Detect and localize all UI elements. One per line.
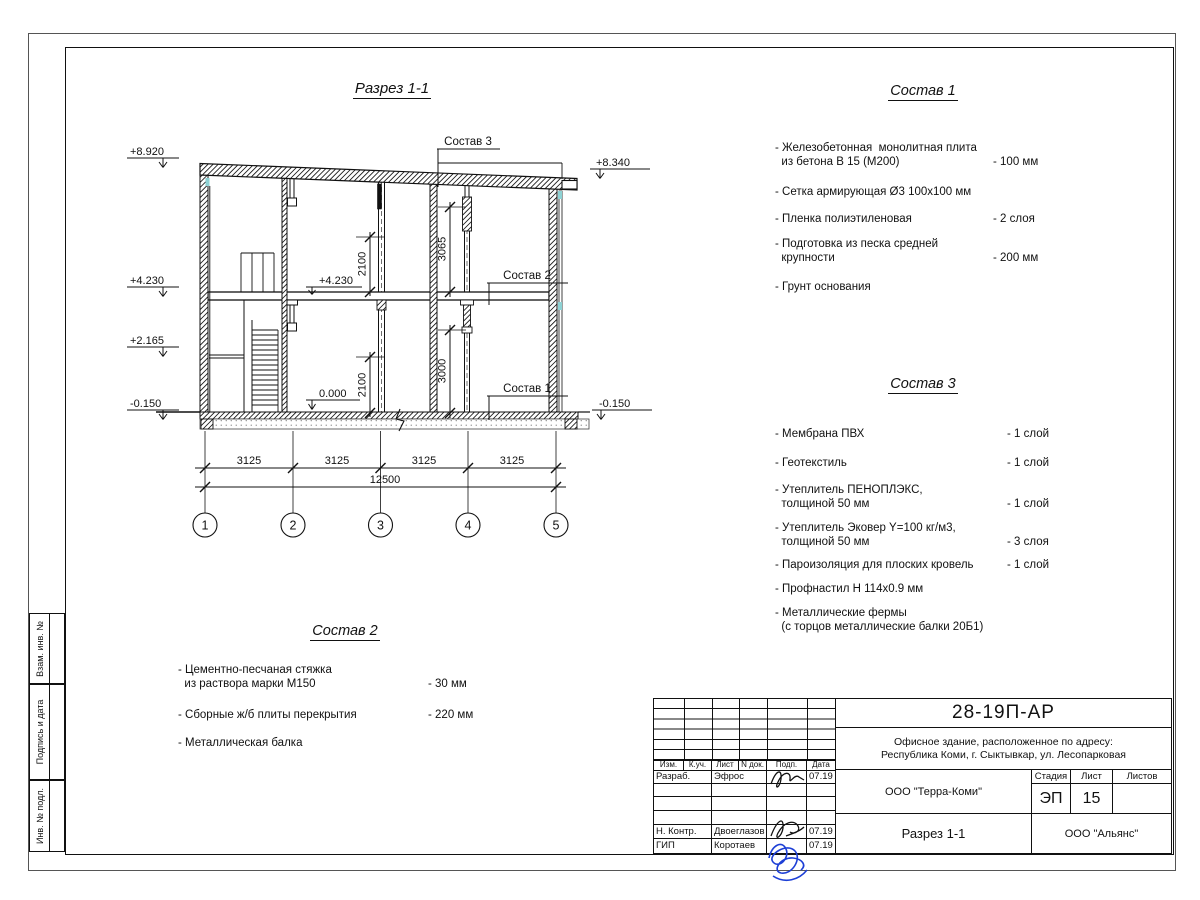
axis-4: 4 <box>465 519 472 533</box>
svg-text:0.000: 0.000 <box>319 388 347 400</box>
roof-end-plate <box>562 181 577 190</box>
svg-text:-0.150: -0.150 <box>130 398 161 410</box>
svg-text:+8.340: +8.340 <box>596 157 630 169</box>
elevation-landing-left: +2.165 <box>127 335 179 357</box>
section-name-cell: Разрез 1-1 <box>836 814 1032 853</box>
right-exterior-wall <box>549 188 557 412</box>
dim-bay-1: 3125 <box>237 455 261 467</box>
sidebar-box-inv: Инв. № подл. <box>29 780 65 852</box>
dim-room-lower: 2100 <box>357 373 369 397</box>
sheet-label: Лист <box>1071 770 1113 784</box>
list-item: - Грунт основания <box>775 281 871 295</box>
svg-text:+4.230: +4.230 <box>319 275 353 287</box>
list-item: - Мембрана ПВХ- 1 слой <box>775 428 864 442</box>
svg-text:+2.165: +2.165 <box>130 335 164 347</box>
svg-text:+8.920: +8.920 <box>130 146 164 158</box>
glazing-mark-right-top <box>558 191 562 199</box>
list-item: - Утеплитель Эковер Y=100 кг/м3, толщино… <box>775 522 956 549</box>
sidebar-label: Взам. инв. № <box>35 621 45 677</box>
dim-bay-2: 3125 <box>325 455 349 467</box>
list-item: - Подготовка из песка средней крупности-… <box>775 238 938 265</box>
sidebar-label: Подпись и дата <box>35 700 45 765</box>
sostav2-heading: Состав 2 <box>284 623 406 639</box>
list-item: - Сборные ж/б плиты перекрытия- 220 мм <box>178 709 357 723</box>
axis-1: 1 <box>202 519 209 533</box>
vertical-dimensions: 2100 2100 3065 3000 <box>356 202 466 418</box>
axis-bubbles: 1 2 3 4 5 <box>193 513 568 537</box>
right-wall-liner <box>559 191 562 412</box>
axis-3: 3 <box>377 519 384 533</box>
glazing-mark-right-mid <box>558 302 562 310</box>
title-block: Изм. К.уч. Лист N док. Подп. Дата Разраб… <box>653 698 1172 854</box>
elevation-ground-left: -0.150 <box>127 398 179 420</box>
sostav1-list: - Железобетонная монолитная плита из бет… <box>775 140 1075 310</box>
leader-label-sostav-1: Состав 1 <box>503 383 551 395</box>
list-item: - Железобетонная монолитная плита из бет… <box>775 142 977 169</box>
list-item: - Утеплитель ПЕНОПЛЭКС, толщиной 50 мм- … <box>775 484 923 511</box>
doc-number: 28-19П-АР <box>836 699 1171 728</box>
svg-text:+4.230: +4.230 <box>130 275 164 287</box>
axis-5: 5 <box>553 519 560 533</box>
list-item: - Профнастил Н 114х0.9 мм <box>775 583 923 597</box>
elevation-zero-inner: 0.000 <box>306 388 360 410</box>
sidebar-box-podpis: Подпись и дата <box>29 684 65 780</box>
contractor-cell: ООО "Альянс" <box>1032 814 1171 853</box>
elevation-roof-left: +8.920 <box>127 146 179 168</box>
staircase <box>209 253 278 412</box>
leader-label-sostav-3: Состав 3 <box>444 136 492 148</box>
stage-label: Стадия <box>1032 770 1071 784</box>
dim-total: 12500 <box>370 474 401 486</box>
section-drawing: Состав 3 Состав 2 Состав 1 +8.920 +4.230 <box>90 70 690 540</box>
revision-table <box>654 699 835 761</box>
list-item: - Пленка полиэтиленовая- 2 слоя <box>775 213 912 227</box>
horizontal-dimensions: 3125 3125 3125 3125 12500 <box>195 431 566 513</box>
title-block-right: 28-19П-АР Офисное здание, расположенное … <box>836 699 1171 853</box>
list-item: - Пароизоляция для плоских кровель- 1 сл… <box>775 559 974 573</box>
sostav3-list: - Мембрана ПВХ- 1 слой - Геотекстиль- 1 … <box>775 428 1085 638</box>
sostav3-heading: Состав 3 <box>862 376 984 392</box>
ground-slab <box>156 409 590 431</box>
title-block-left: Изм. К.уч. Лист N док. Подп. Дата Разраб… <box>654 699 836 853</box>
floor-slab <box>208 292 549 300</box>
axis-2: 2 <box>290 519 297 533</box>
dim-bay-3: 3125 <box>412 455 436 467</box>
glazing-mark-left <box>206 178 210 186</box>
dim-clear-lower: 3000 <box>437 359 449 383</box>
sig-row-razrab: Разраб. Эфрос 07.19 <box>654 770 835 784</box>
sidebar-label: Инв. № подл. <box>35 788 45 844</box>
elevation-roof-right: +8.340 <box>590 157 650 179</box>
sig-row-gip: ГИП Коротаев 07.19 <box>654 839 835 853</box>
list-item: - Цементно-песчаная стяжка из раствора м… <box>178 664 332 691</box>
sig-row-empty <box>654 797 835 811</box>
leader-label-sostav-2: Состав 2 <box>503 270 551 282</box>
dim-bay-4: 3125 <box>500 455 524 467</box>
dim-clear-upper: 3065 <box>437 237 449 261</box>
wall-axis-2 <box>282 177 287 412</box>
sostav2-list: - Цементно-песчаная стяжка из раствора м… <box>178 664 508 764</box>
sostav1-heading: Состав 1 <box>862 83 984 99</box>
drawing-sheet: Разрез 1-1 <box>0 0 1200 900</box>
project-address: Офисное здание, расположенное по адресу:… <box>836 728 1171 770</box>
hangers-axis-2 <box>287 177 298 332</box>
stage-value: ЭП <box>1032 784 1071 814</box>
sheets-label: Листов <box>1113 770 1171 784</box>
svg-text:-0.150: -0.150 <box>599 398 630 410</box>
sidebar-box-vzam: Взам. инв. № <box>29 613 65 684</box>
list-item: - Геотекстиль- 1 слой <box>775 457 847 471</box>
list-item: - Металлические фермы (с торцов металлич… <box>775 607 983 634</box>
design-org: ООО "Терра-Коми" <box>836 770 1032 814</box>
elevation-ground-right: -0.150 <box>592 398 652 420</box>
sig-row-empty <box>654 811 835 825</box>
left-exterior-wall <box>200 164 208 412</box>
sheets-value <box>1113 784 1171 814</box>
elevation-floor2-left: +4.230 <box>127 275 179 297</box>
list-item: - Металлическая балка <box>178 737 302 751</box>
sheet-value: 15 <box>1071 784 1113 814</box>
sig-row-nkontr: Н. Контр. Двоеглазов 07.19 <box>654 825 835 839</box>
sig-row-empty <box>654 784 835 797</box>
roof-slab <box>200 164 577 191</box>
list-item: - Сетка армирующая Ø3 100х100 мм <box>775 186 971 200</box>
dim-room-upper: 2100 <box>357 252 369 276</box>
column-connectors <box>377 184 474 333</box>
